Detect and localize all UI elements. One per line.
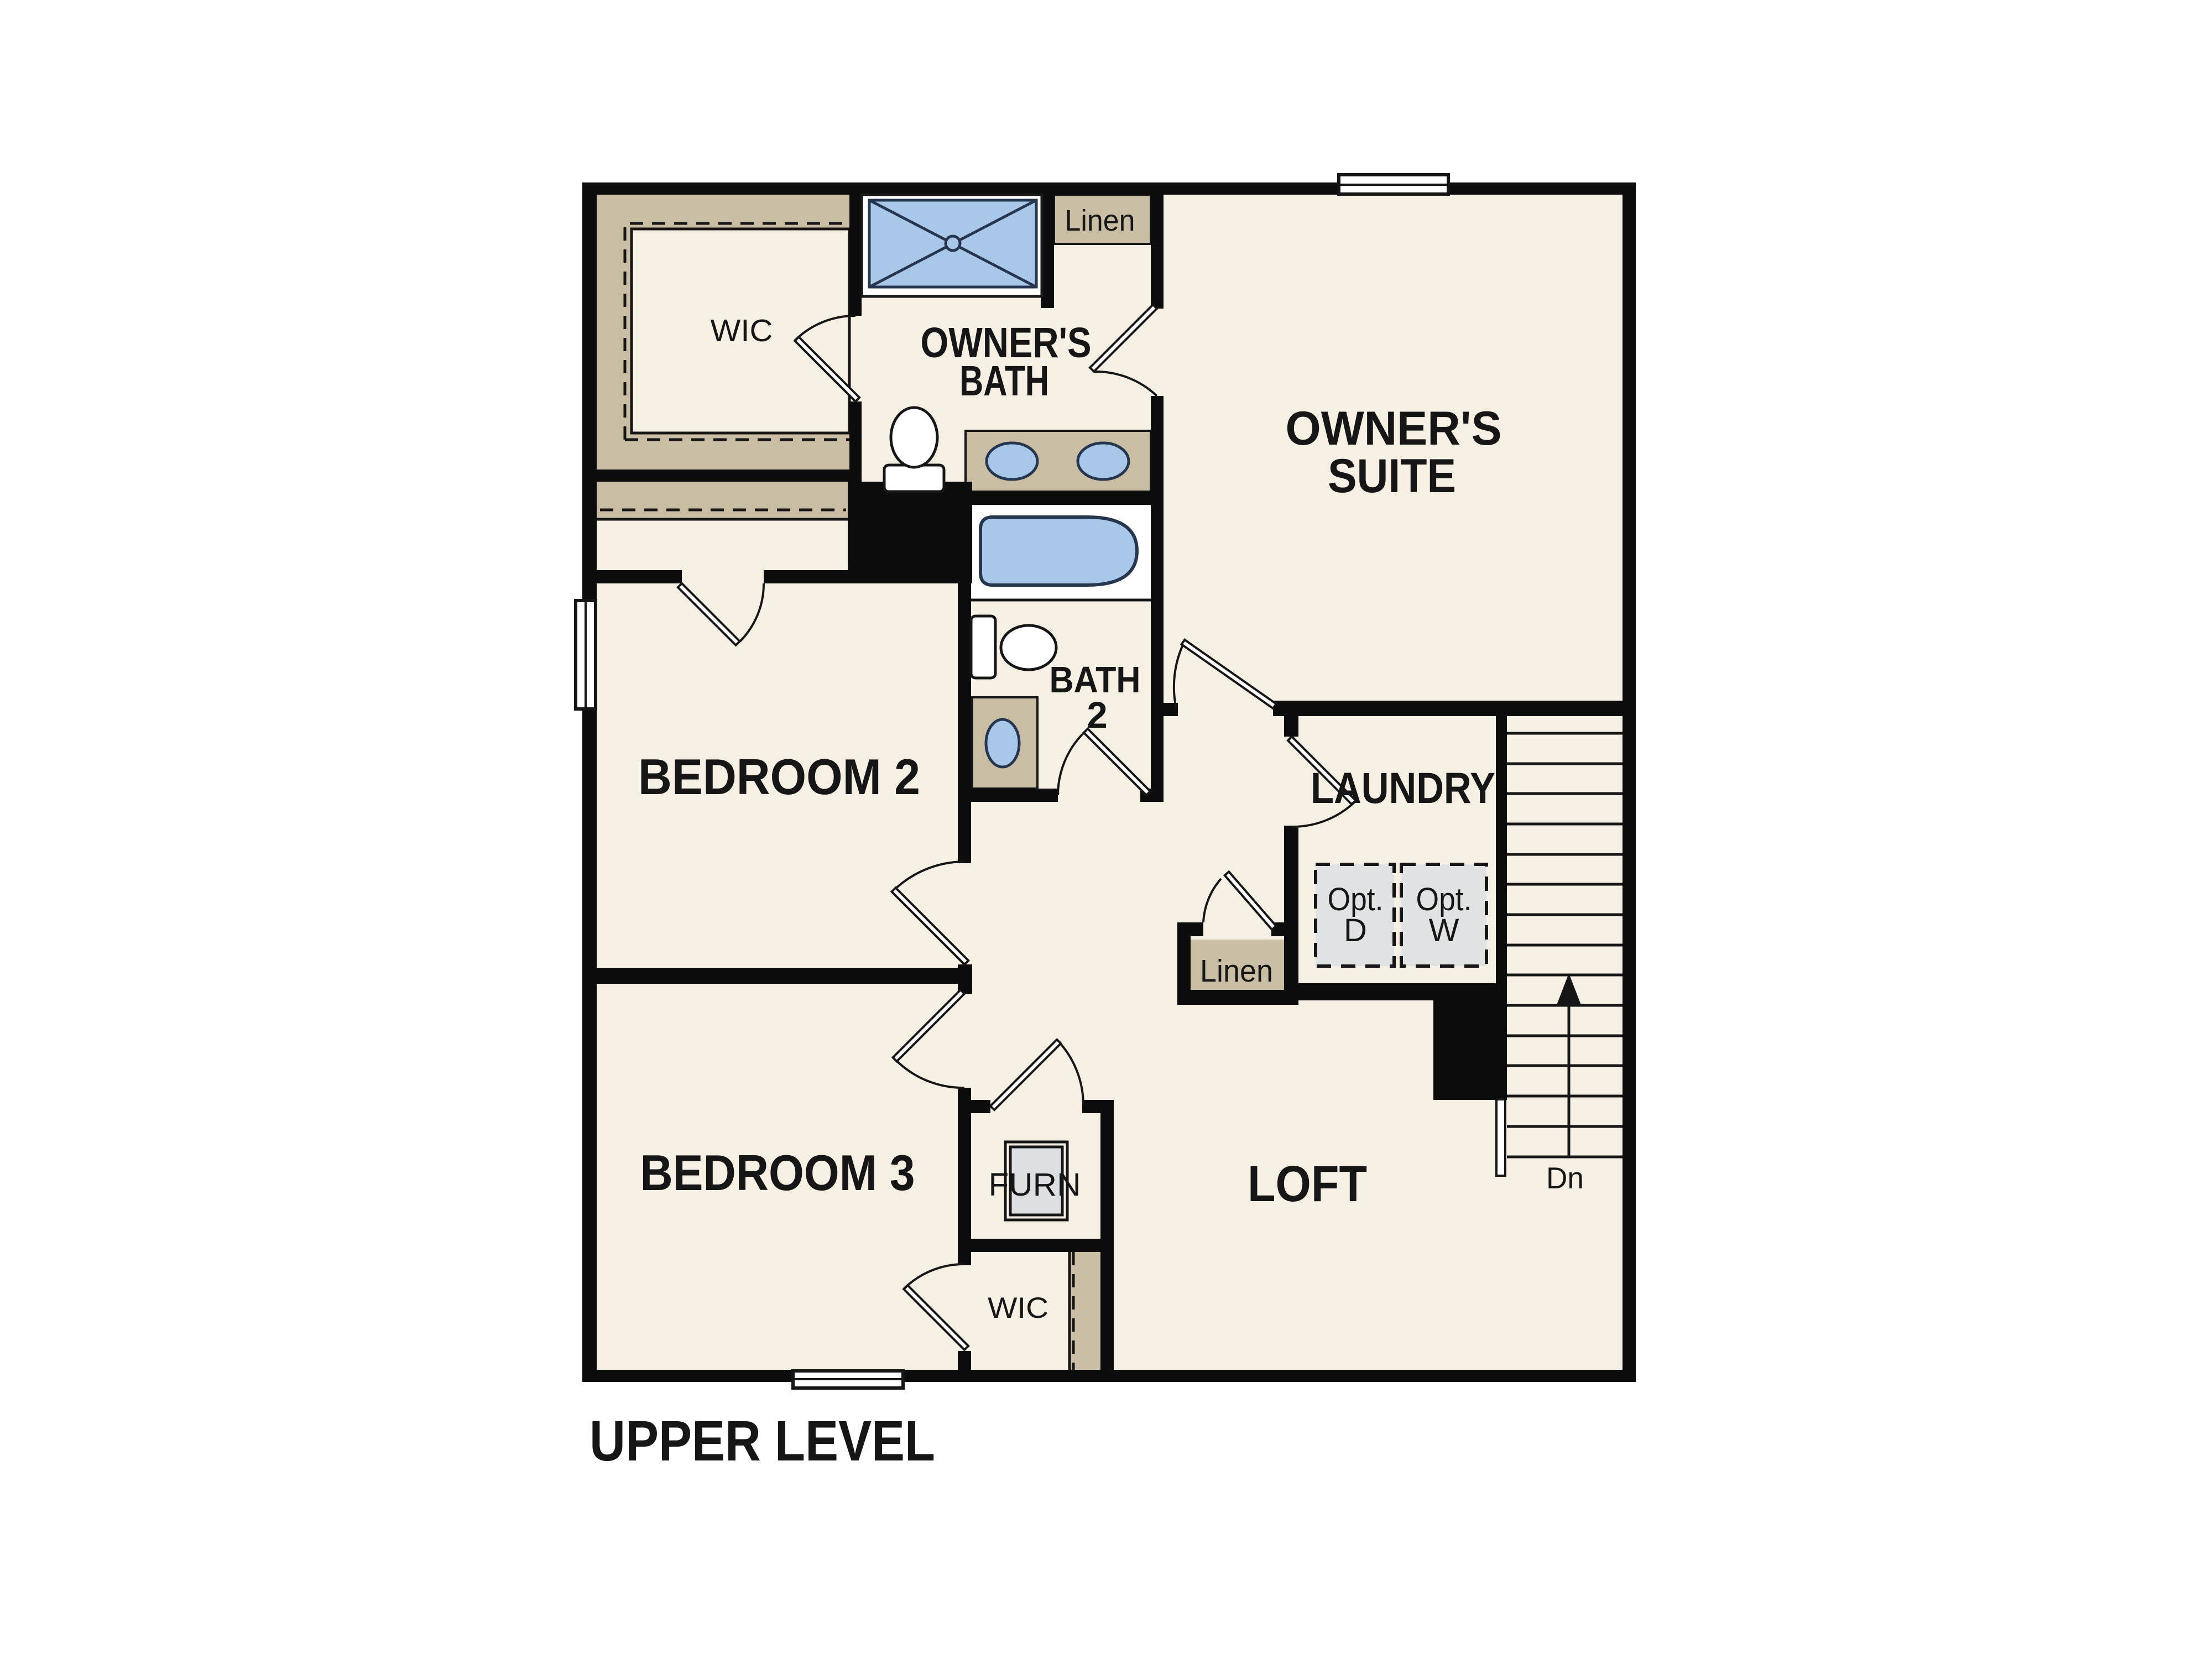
svg-text:Linen: Linen <box>1065 204 1135 237</box>
svg-text:D: D <box>1344 912 1367 948</box>
svg-text:Dn: Dn <box>1546 1161 1584 1195</box>
svg-text:BEDROOM 3: BEDROOM 3 <box>640 1145 915 1201</box>
svg-text:W: W <box>1429 912 1459 948</box>
svg-text:2: 2 <box>1087 695 1107 736</box>
svg-text:WIC: WIC <box>711 313 773 348</box>
svg-text:SUITE: SUITE <box>1328 450 1456 503</box>
svg-text:UPPER LEVEL: UPPER LEVEL <box>589 1409 935 1473</box>
svg-text:BEDROOM 2: BEDROOM 2 <box>638 749 920 805</box>
svg-text:BATH: BATH <box>959 357 1049 405</box>
svg-text:LAUNDRY: LAUNDRY <box>1311 763 1495 812</box>
svg-text:Linen: Linen <box>1200 953 1273 989</box>
svg-text:LOFT: LOFT <box>1248 1156 1367 1212</box>
svg-text:OWNER'S: OWNER'S <box>1286 402 1502 455</box>
svg-text:WIC: WIC <box>988 1292 1048 1324</box>
svg-text:FURN: FURN <box>989 1167 1081 1203</box>
